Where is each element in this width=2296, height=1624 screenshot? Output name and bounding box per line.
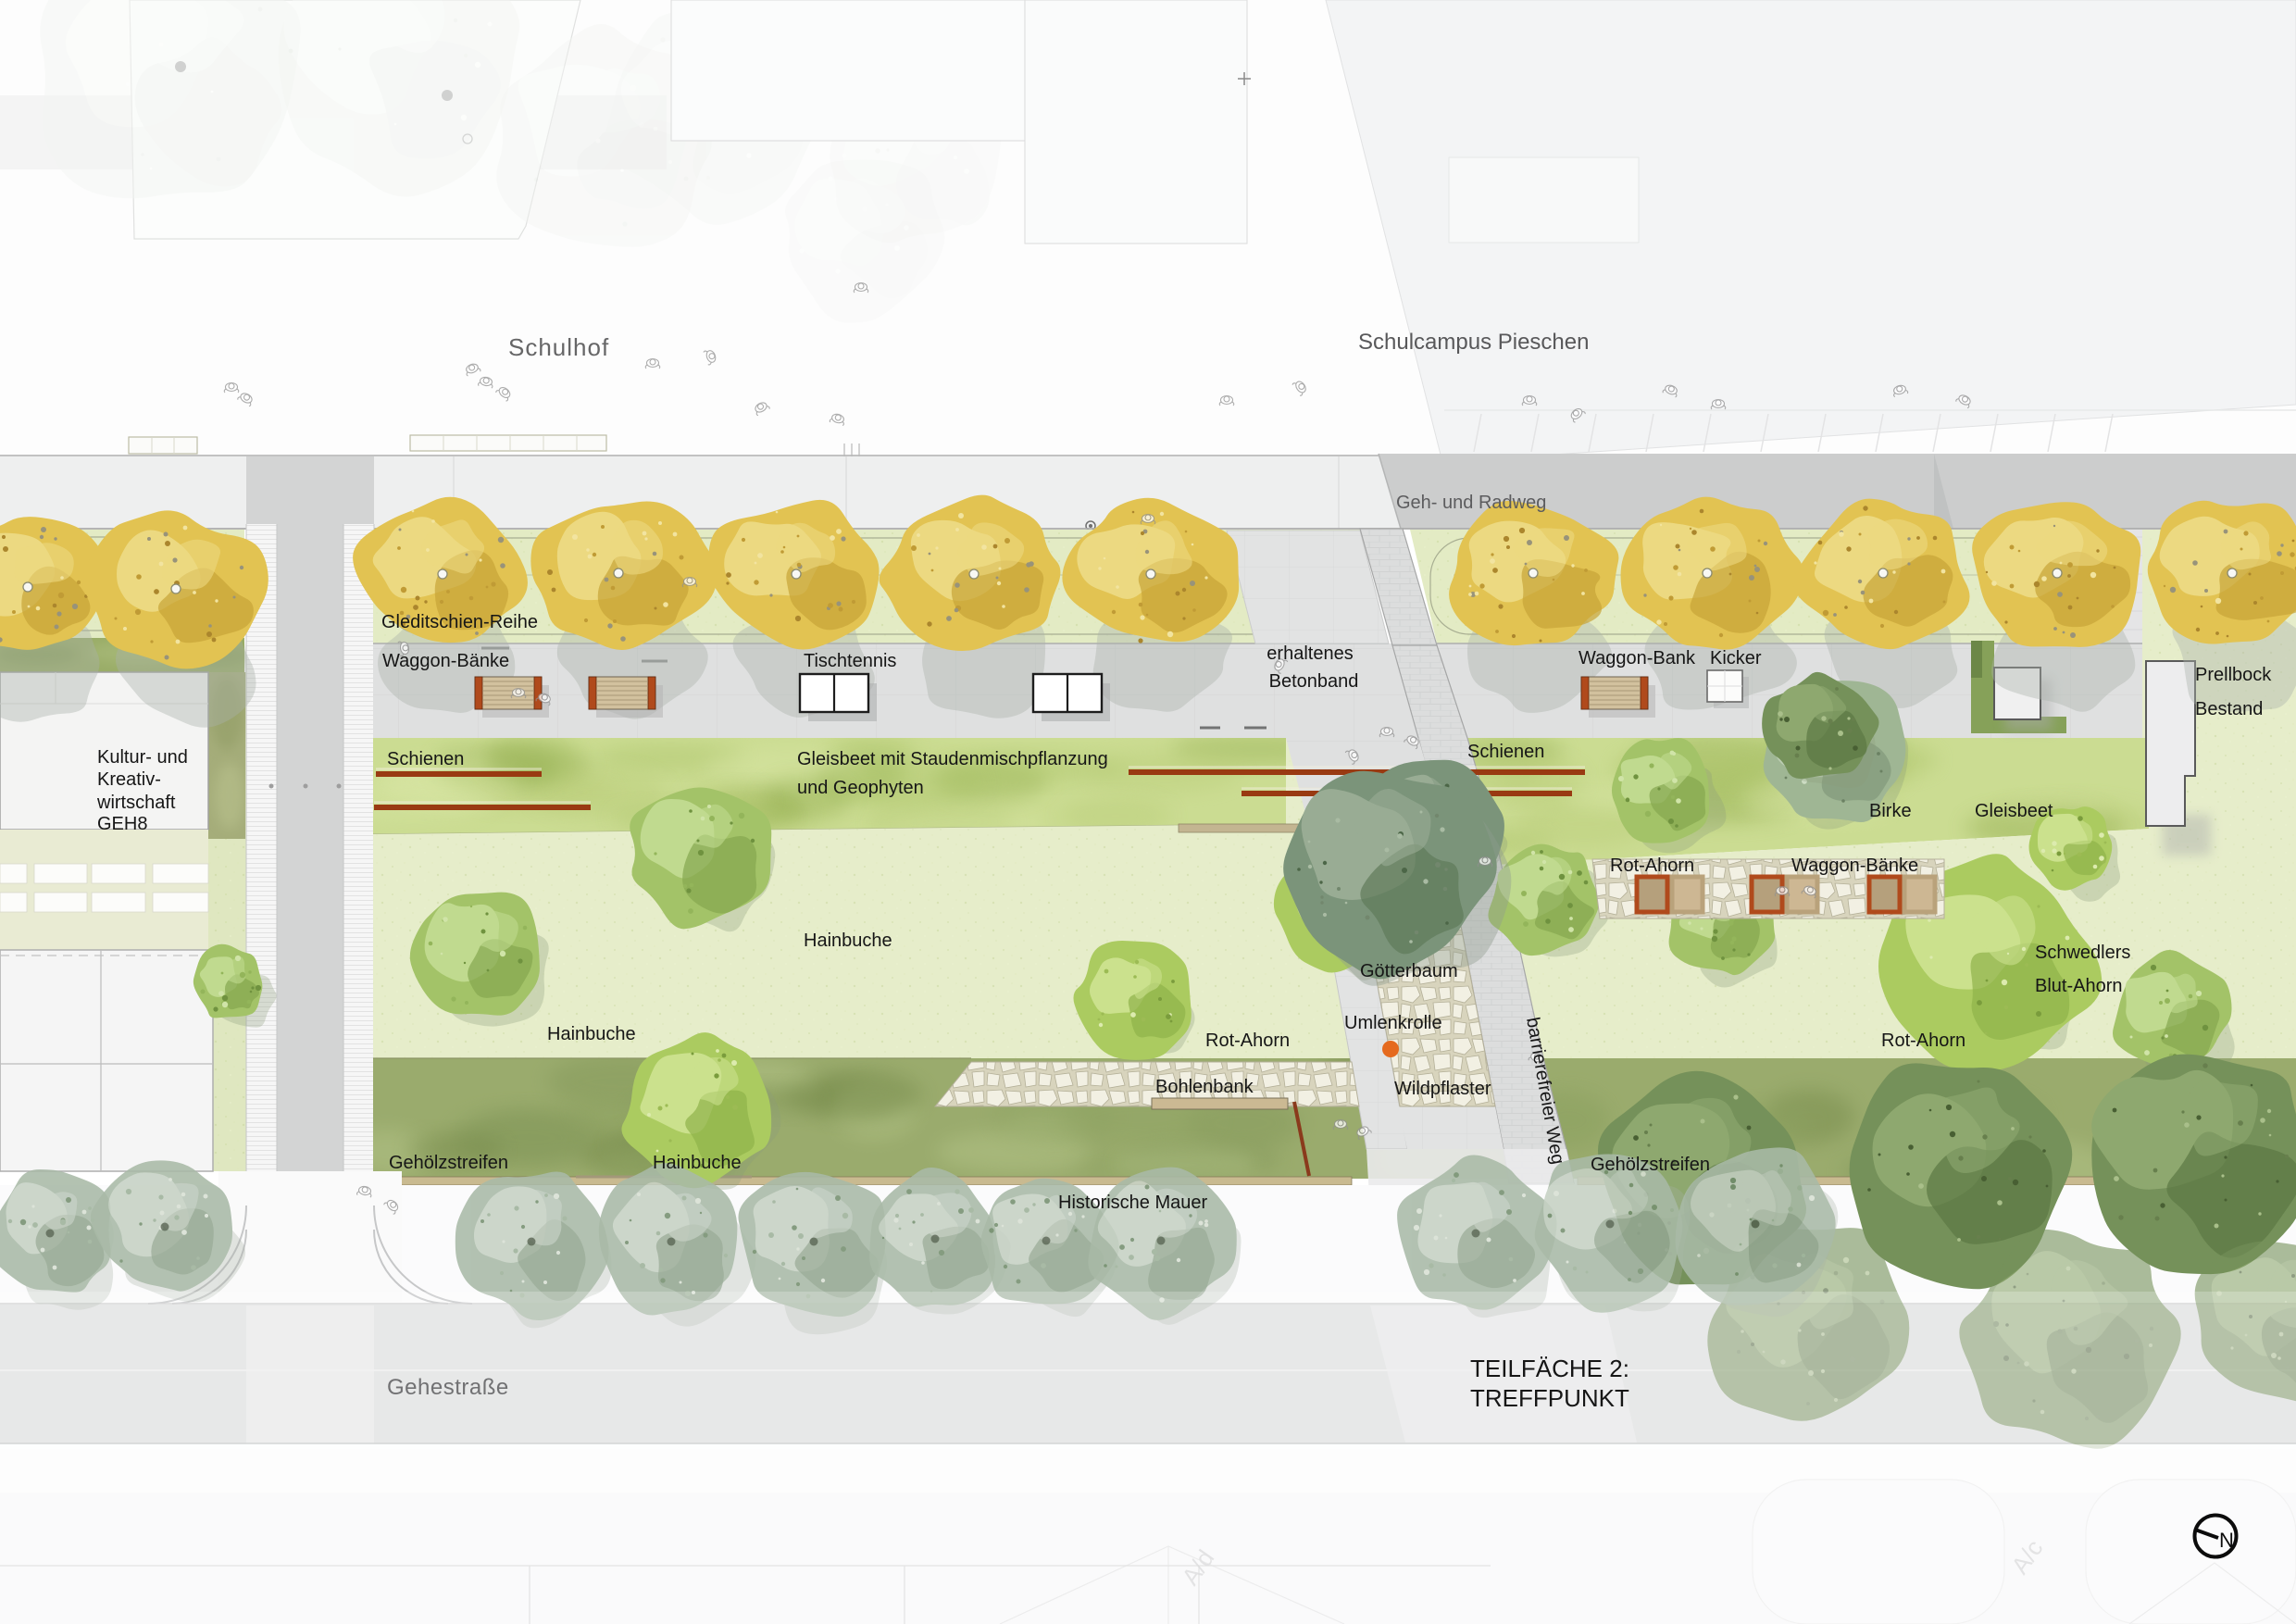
svg-text:Gehölzstreifen: Gehölzstreifen bbox=[1591, 1155, 1710, 1175]
svg-text:Kicker: Kicker bbox=[1710, 648, 1762, 668]
svg-text:Gleisbeet mit Staudenmischpfla: Gleisbeet mit Staudenmischpflanzung bbox=[797, 749, 1108, 769]
svg-text:Waggon-Bänke: Waggon-Bänke bbox=[382, 651, 509, 671]
svg-text:Waggon-Bank: Waggon-Bank bbox=[1578, 648, 1696, 668]
svg-text:Kreativ-: Kreativ- bbox=[97, 769, 161, 790]
svg-text:Gehestraße: Gehestraße bbox=[387, 1375, 509, 1400]
svg-text:und Geophyten: und Geophyten bbox=[797, 778, 924, 798]
svg-text:TREFFPUNKT: TREFFPUNKT bbox=[1470, 1384, 1629, 1412]
svg-text:TEILFÄCHE 2:: TEILFÄCHE 2: bbox=[1470, 1355, 1629, 1382]
svg-text:Tischtennis: Tischtennis bbox=[804, 651, 896, 671]
svg-text:Betonband: Betonband bbox=[1269, 671, 1359, 692]
svg-text:Gehölzstreifen: Gehölzstreifen bbox=[389, 1153, 508, 1173]
svg-text:Gleisbeet: Gleisbeet bbox=[1975, 801, 2053, 821]
svg-text:Umlenkrolle: Umlenkrolle bbox=[1344, 1013, 1442, 1033]
svg-text:Schwedlers: Schwedlers bbox=[2035, 943, 2130, 963]
svg-text:Blut-Ahorn: Blut-Ahorn bbox=[2035, 976, 2123, 996]
svg-text:Historische Mauer: Historische Mauer bbox=[1058, 1193, 1208, 1213]
svg-text:Rot-Ahorn: Rot-Ahorn bbox=[1205, 1031, 1290, 1051]
svg-text:wirtschaft: wirtschaft bbox=[96, 793, 176, 813]
svg-text:Schulhof: Schulhof bbox=[508, 333, 609, 361]
svg-text:Rot-Ahorn: Rot-Ahorn bbox=[1610, 856, 1694, 876]
svg-text:Schienen: Schienen bbox=[1467, 742, 1544, 762]
svg-text:Schulcampus Pieschen: Schulcampus Pieschen bbox=[1358, 330, 1589, 355]
svg-text:Rot-Ahorn: Rot-Ahorn bbox=[1881, 1031, 1965, 1051]
svg-text:GEH8: GEH8 bbox=[97, 814, 147, 834]
svg-text:Gleditschien-Reihe: Gleditschien-Reihe bbox=[381, 612, 538, 632]
svg-text:Götterbaum: Götterbaum bbox=[1360, 961, 1458, 981]
svg-text:erhaltenes: erhaltenes bbox=[1267, 643, 1353, 664]
svg-text:Hainbuche: Hainbuche bbox=[804, 931, 892, 951]
svg-text:Prellbock: Prellbock bbox=[2195, 665, 2272, 685]
svg-text:Hainbuche: Hainbuche bbox=[653, 1153, 742, 1173]
svg-text:Wildpflaster: Wildpflaster bbox=[1394, 1079, 1491, 1099]
svg-text:Kultur- und: Kultur- und bbox=[97, 747, 188, 768]
svg-text:Geh- und Radweg: Geh- und Radweg bbox=[1396, 493, 1546, 513]
svg-text:Hainbuche: Hainbuche bbox=[547, 1024, 636, 1044]
svg-text:N: N bbox=[2219, 1529, 2234, 1552]
svg-text:Waggon-Bänke: Waggon-Bänke bbox=[1791, 856, 1918, 876]
svg-text:Birke: Birke bbox=[1869, 801, 1912, 821]
svg-text:Schienen: Schienen bbox=[387, 749, 464, 769]
svg-text:Bestand: Bestand bbox=[2195, 699, 2263, 719]
svg-text:Bohlenbank: Bohlenbank bbox=[1155, 1077, 1254, 1097]
